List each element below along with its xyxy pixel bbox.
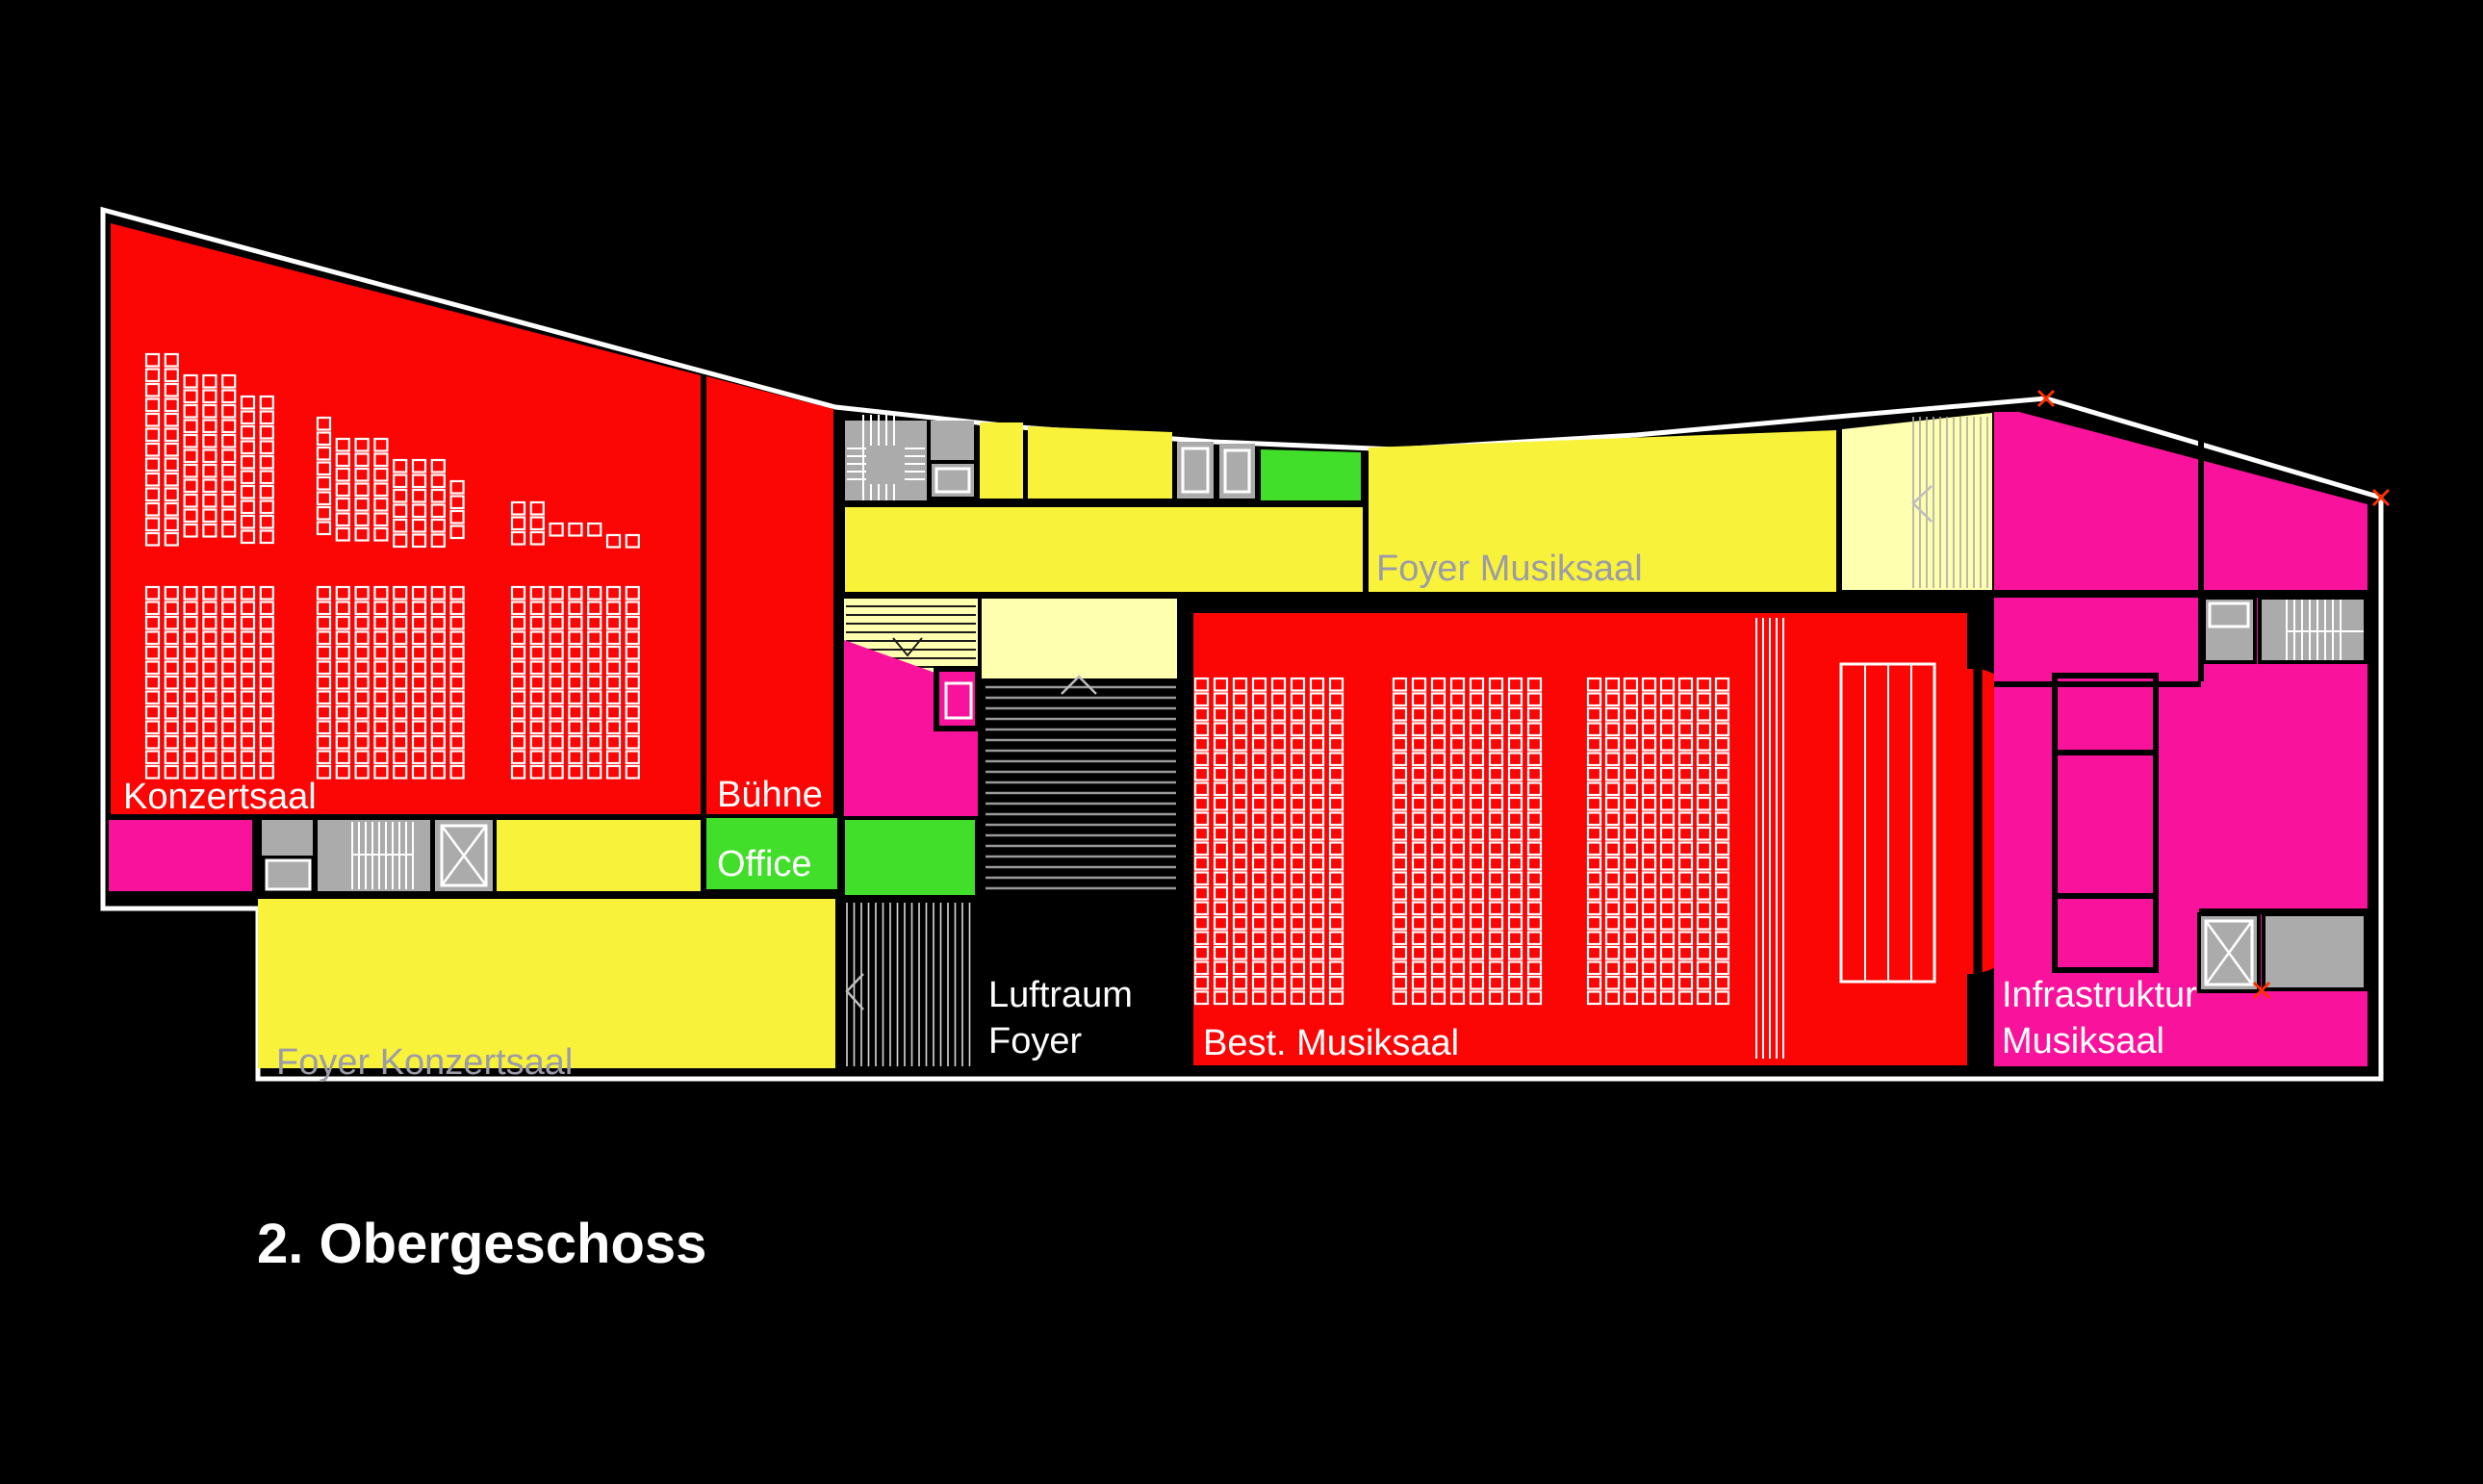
room-foyer-stair-column bbox=[1842, 413, 1992, 590]
luftraum-steps bbox=[986, 687, 1176, 888]
room-green-top bbox=[1261, 449, 1361, 500]
room-corridor-yellow bbox=[845, 507, 1363, 592]
infra-wall-room-e bbox=[1994, 681, 2201, 687]
page-title: 2. Obergeschoss bbox=[257, 1213, 706, 1275]
floor-plan-page: Konzertsaal Bühne Office Foyer Konzertsa… bbox=[0, 0, 2483, 1484]
label-luftraum-line1: Luftraum bbox=[988, 975, 1133, 1015]
label-konzertsaal: Konzertsaal bbox=[123, 777, 317, 817]
core-shaft-door bbox=[267, 860, 310, 889]
room-yellow-top bbox=[1028, 426, 1172, 499]
label-buehne: Bühne bbox=[717, 775, 823, 815]
stage-wall-bottom bbox=[1967, 974, 1981, 1065]
core-box-a bbox=[931, 421, 974, 460]
label-luftraum-line2: Foyer bbox=[988, 1021, 1082, 1062]
infra-core-plain bbox=[2264, 914, 2366, 989]
label-foyer-musiksaal: Foyer Musiksaal bbox=[1376, 549, 1643, 589]
room-buehne bbox=[706, 376, 833, 814]
room-green-annex bbox=[845, 820, 975, 895]
floor-plan-canvas: Konzertsaal Bühne Office Foyer Konzertsa… bbox=[0, 0, 2483, 1484]
core-shaft-small bbox=[262, 820, 313, 856]
luftraum-arrow-icon bbox=[1062, 677, 1096, 694]
infra-stairs-top bbox=[2260, 598, 2366, 662]
room-yellow-cell bbox=[980, 422, 1023, 499]
label-infrastruktur-line1: Infrastruktur bbox=[2002, 975, 2197, 1015]
escalator-treads bbox=[847, 903, 970, 1066]
stage-wall-top bbox=[1967, 613, 1981, 669]
room-pale-landing bbox=[982, 599, 1177, 678]
room-side-magenta bbox=[109, 820, 252, 891]
label-office: Office bbox=[717, 844, 812, 884]
label-infrastruktur-line2: Musiksaal bbox=[2002, 1021, 2164, 1062]
room-yellow-strip-left bbox=[497, 820, 701, 891]
label-best-musiksaal: Best. Musiksaal bbox=[1203, 1023, 1459, 1063]
label-foyer-konzertsaal: Foyer Konzertsaal bbox=[276, 1042, 573, 1083]
